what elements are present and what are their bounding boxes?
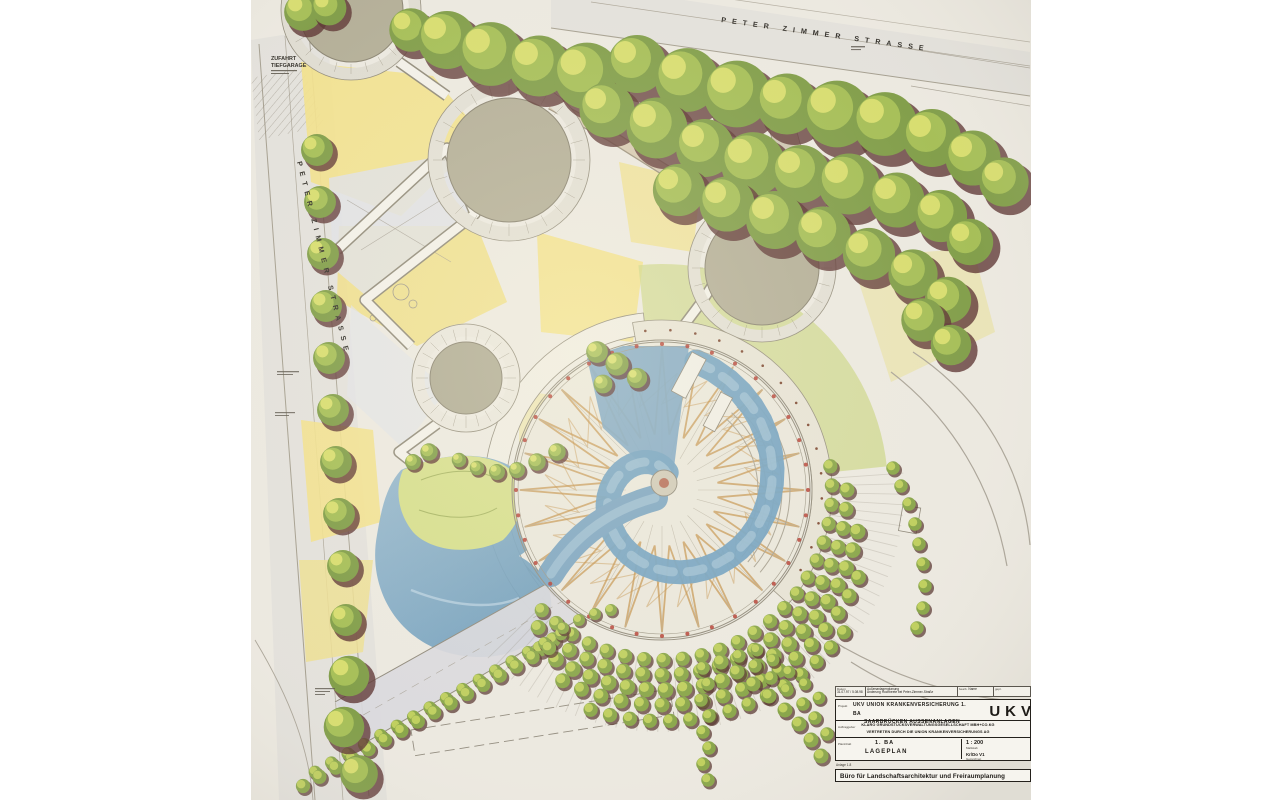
client-row: Auftraggeber KLARO GRUNDSTÜCKSVERWALTUNG… [836,721,1030,738]
gepr-label: gepr. [995,687,1002,691]
ukv-logo: UKV [989,703,1031,720]
plan-title: LAGEPLAN [865,749,961,755]
plan-label: Planinhalt [838,739,853,759]
drawn-label: Gezeichnet [966,757,1028,761]
firm-name: Büro für Landschaftsarchitektur und Frei… [835,769,1031,782]
site-plan-drawing: PETER ZIMMER STRASSE PETER ZIMMER STRASS… [251,0,1031,800]
title-block: Datum 31.07.97 / 5.08.98 Außenanlagenpla… [835,686,1031,800]
client-line-1: KLARO GRUNDSTÜCKSVERWALTUNGSGESELLSCHAFT… [853,722,1003,729]
client-line-2: VERTRETEN DURCH DIE UNION KRANKENVERSICH… [853,729,1003,736]
title-block-note: Anlage 1.8 [835,761,1031,769]
project-row: Projekt UKV UNION KRANKENVERSICHERUNG 1.… [836,700,1030,721]
plan-row: Planinhalt 1. BA LAGEPLAN 1 : 200 Maßsta… [836,738,1030,760]
revision-dates: 31.07.97 / 5.08.98 [837,690,863,694]
title-block-main: Projekt UKV UNION KRANKENVERSICHERUNG 1.… [835,699,1031,761]
svg-text:ZUFAHRT: ZUFAHRT [271,56,297,62]
bearb-label: bearb. [959,687,968,691]
project-line-1: UKV UNION KRANKENVERSICHERUNG 1. BA [853,701,971,718]
client-label: Auftraggeber [838,722,853,736]
plan-phase: 1. BA [875,740,961,746]
revision-row: Datum 31.07.97 / 5.08.98 Außenanlagenpla… [835,686,1031,697]
revision-change-2: Änderung Hochbeete bei Peter-Zimmer-Stra… [867,690,933,694]
scale-label: Maßstab [966,746,1028,750]
svg-text:TIEFGARAGE: TIEFGARAGE [271,63,307,69]
plan-sheet: PETER ZIMMER STRASSE PETER ZIMMER STRASS… [251,0,1031,800]
project-label: Projekt [838,701,853,719]
scan-background: PETER ZIMMER STRASSE PETER ZIMMER STRASS… [0,0,1280,800]
bearb-value: Name [968,687,977,691]
